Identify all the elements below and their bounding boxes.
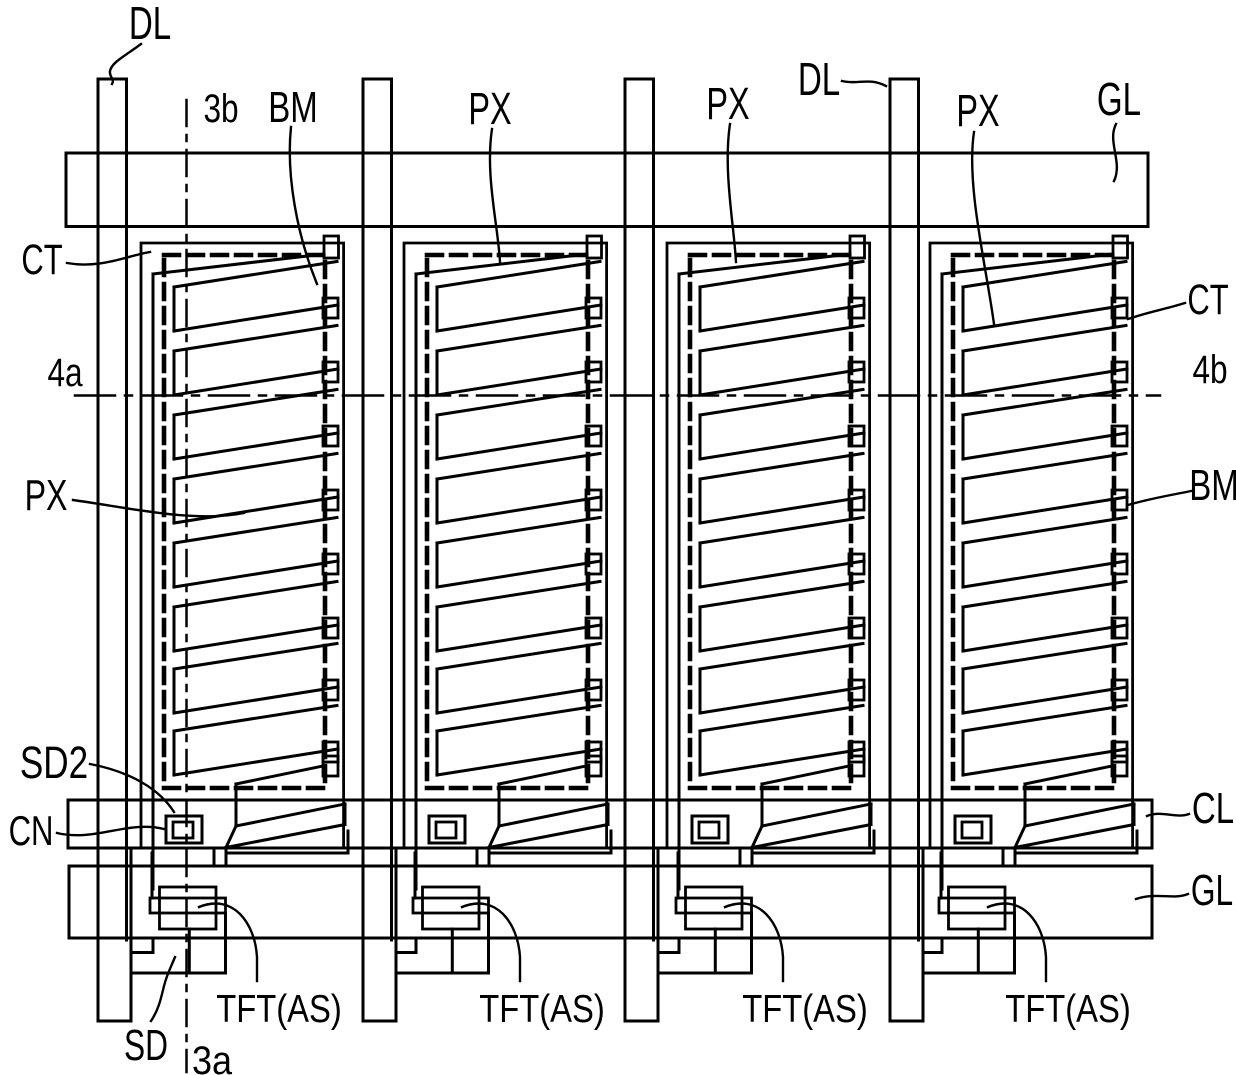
svg-text:TFT(AS): TFT(AS) bbox=[216, 986, 342, 1030]
svg-text:SD2: SD2 bbox=[20, 737, 88, 788]
svg-text:SD: SD bbox=[124, 1021, 168, 1070]
svg-text:PX: PX bbox=[25, 471, 68, 520]
svg-text:TFT(AS): TFT(AS) bbox=[1005, 986, 1131, 1030]
svg-text:PX: PX bbox=[706, 80, 749, 129]
svg-text:TFT(AS): TFT(AS) bbox=[742, 986, 868, 1030]
svg-text:BM: BM bbox=[268, 84, 317, 133]
svg-text:3b: 3b bbox=[203, 85, 238, 130]
svg-text:CT: CT bbox=[1187, 275, 1228, 323]
svg-text:TFT(AS): TFT(AS) bbox=[479, 986, 605, 1030]
svg-text:PX: PX bbox=[956, 87, 999, 136]
svg-text:DL: DL bbox=[129, 0, 171, 49]
svg-text:GL: GL bbox=[1097, 75, 1141, 125]
svg-text:4a: 4a bbox=[47, 349, 83, 394]
svg-text:CL: CL bbox=[1192, 785, 1234, 834]
svg-text:CN: CN bbox=[9, 807, 54, 854]
svg-text:3a: 3a bbox=[192, 1039, 233, 1075]
svg-text:PX: PX bbox=[468, 85, 511, 134]
svg-text:DL: DL bbox=[798, 55, 840, 105]
svg-text:BM: BM bbox=[1189, 462, 1236, 511]
svg-text:GL: GL bbox=[1191, 866, 1233, 915]
svg-text:CT: CT bbox=[21, 235, 62, 283]
svg-text:4b: 4b bbox=[1192, 346, 1227, 391]
